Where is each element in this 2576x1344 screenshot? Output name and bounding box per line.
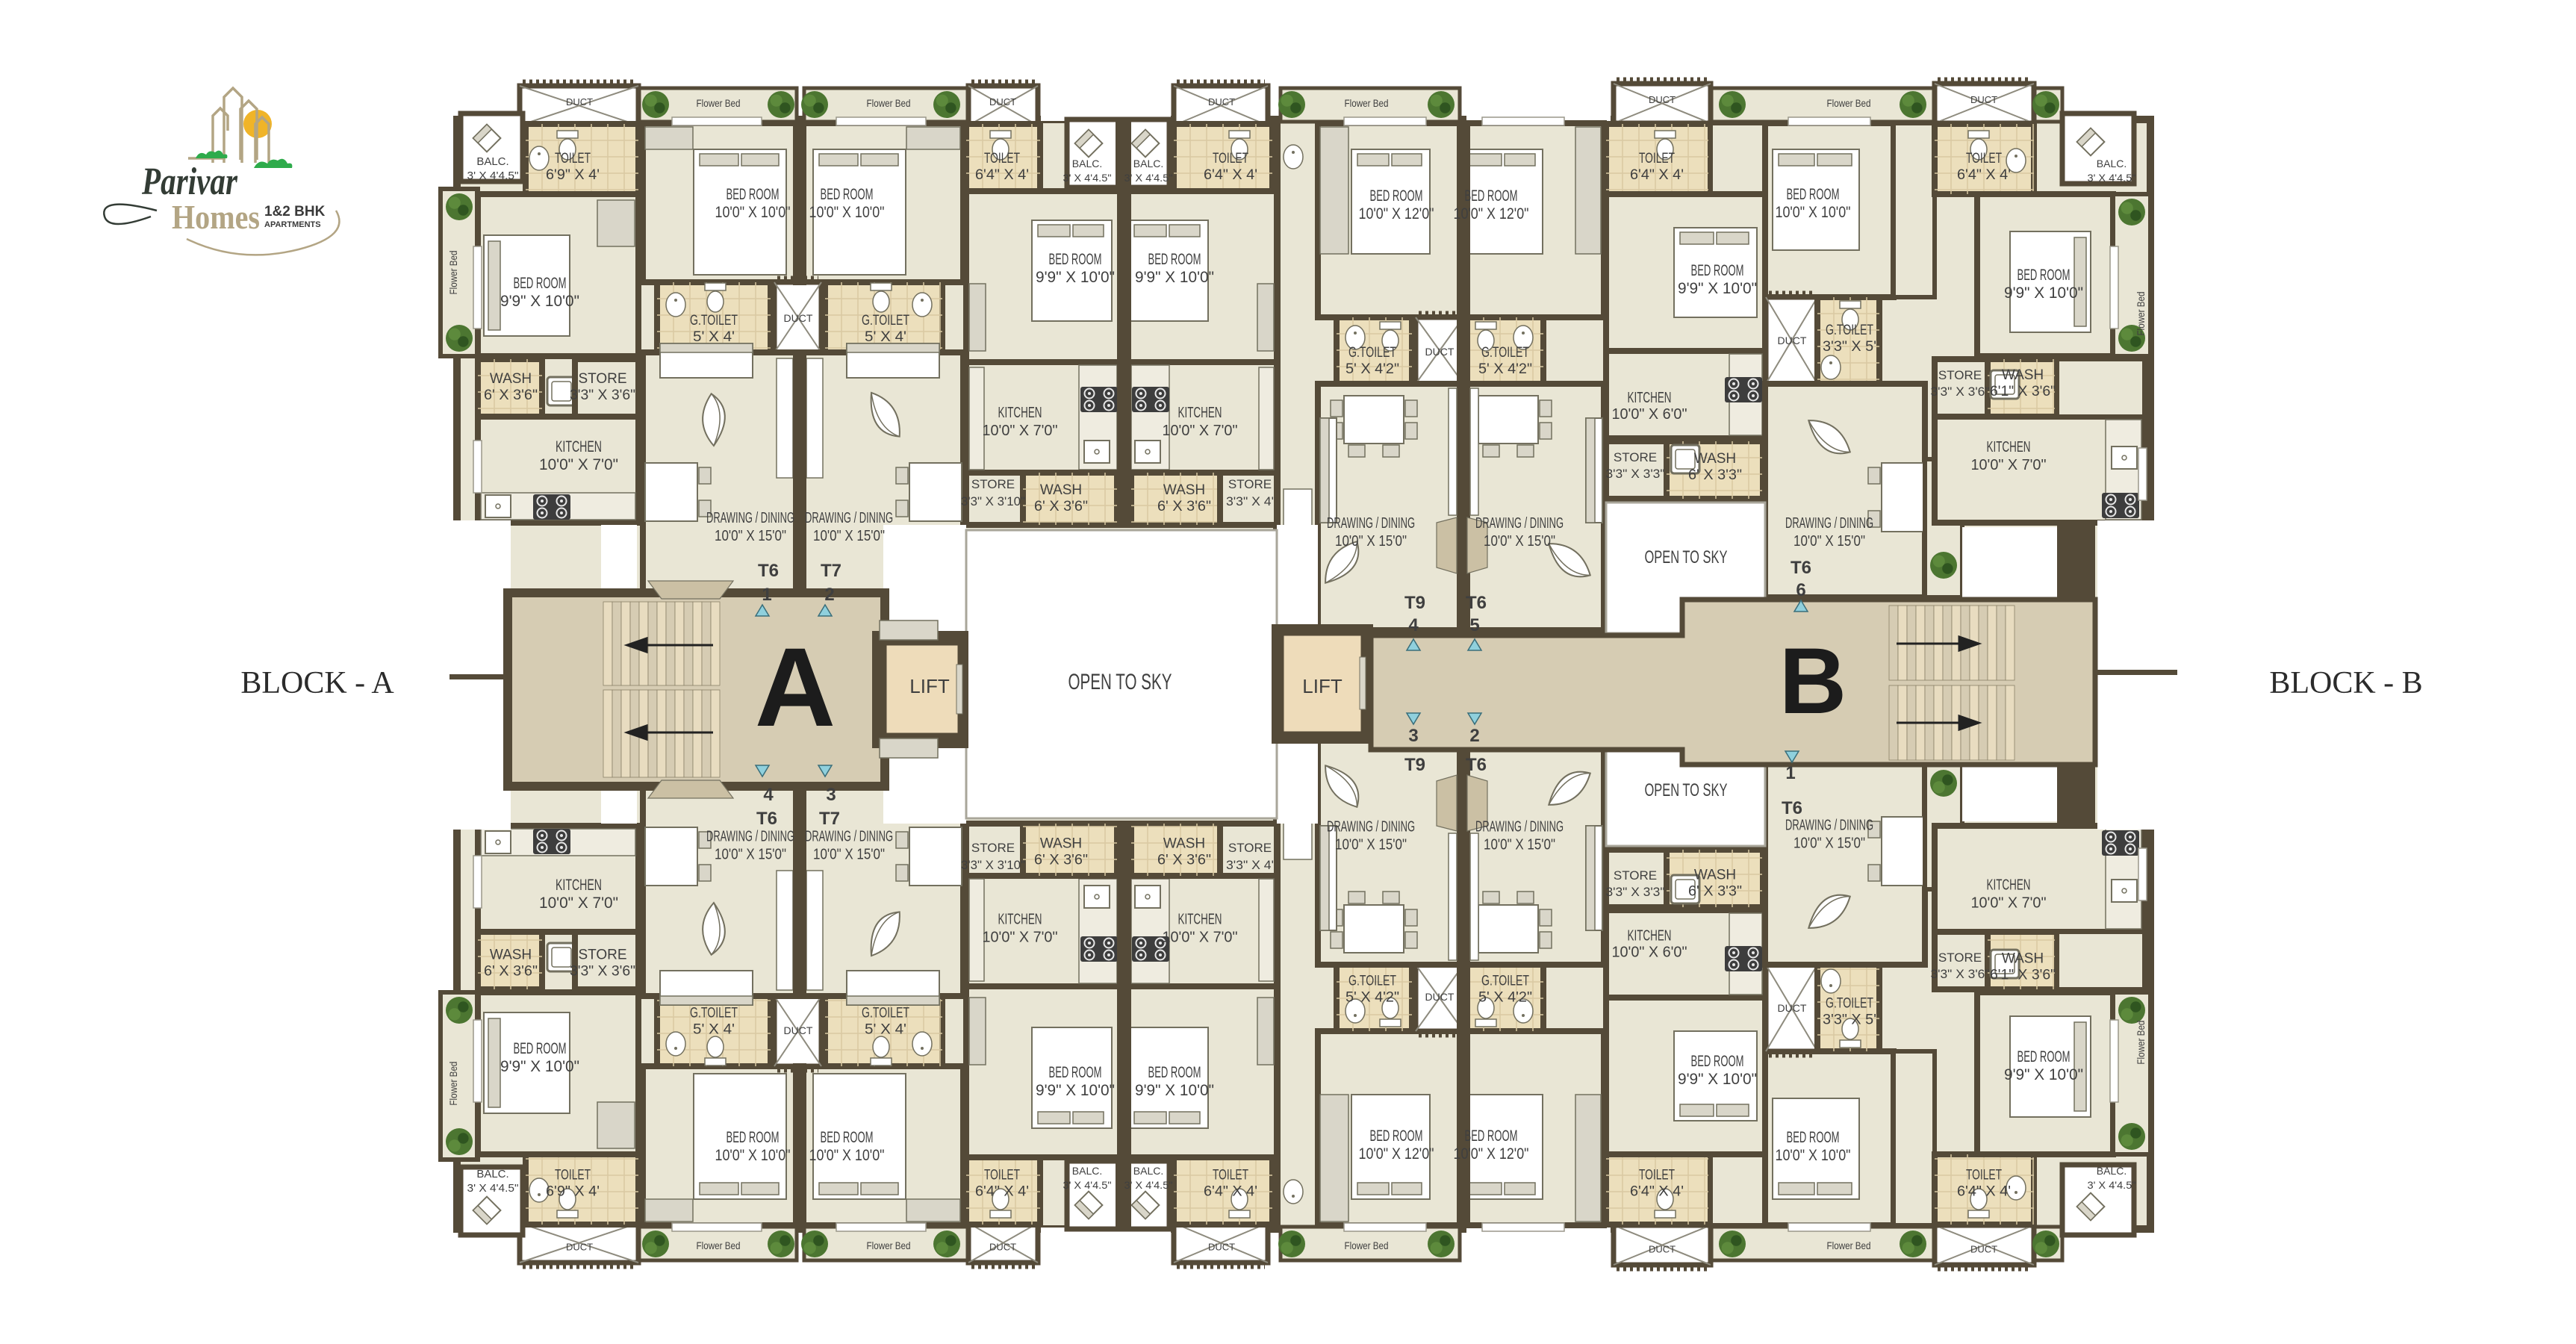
svg-text:3' X 4'4.5": 3' X 4'4.5" <box>2088 1179 2136 1191</box>
svg-text:TOILET: TOILET <box>1639 151 1675 167</box>
svg-text:3'3" X 3'10": 3'3" X 3'10" <box>961 858 1025 872</box>
svg-text:5' X 4': 5' X 4' <box>865 329 906 345</box>
svg-text:OPEN TO SKY: OPEN TO SKY <box>1645 547 1728 567</box>
svg-text:DRAWING / DINING: DRAWING / DINING <box>1785 817 1873 833</box>
svg-text:5: 5 <box>1469 615 1479 635</box>
svg-text:10'0" X 7'0": 10'0" X 7'0" <box>1163 423 1238 439</box>
svg-text:6'4" X 4': 6'4" X 4' <box>975 1184 1029 1200</box>
svg-text:TOILET: TOILET <box>555 1168 591 1183</box>
svg-text:STORE: STORE <box>1614 868 1657 883</box>
svg-text:Flower Bed: Flower Bed <box>1827 1239 1871 1251</box>
svg-text:STORE: STORE <box>578 371 626 387</box>
svg-text:5' X 4'2": 5' X 4'2" <box>1345 361 1399 377</box>
svg-text:WASH: WASH <box>1694 451 1736 467</box>
svg-text:KITCHEN: KITCHEN <box>1628 390 1672 406</box>
svg-text:10'0" X 10'0": 10'0" X 10'0" <box>1776 204 1851 221</box>
svg-text:9'9" X 10'0": 9'9" X 10'0" <box>1036 1082 1115 1099</box>
svg-text:1&2 BHK: 1&2 BHK <box>264 204 326 220</box>
svg-text:DRAWING / DINING: DRAWING / DINING <box>706 828 794 844</box>
svg-text:DUCT: DUCT <box>1970 1243 1997 1254</box>
svg-text:3'3" X 5': 3'3" X 5' <box>1823 1012 1876 1028</box>
svg-text:10'0" X 12'0": 10'0" X 12'0" <box>1359 1145 1434 1163</box>
svg-text:3' X 4'4.5": 3' X 4'4.5" <box>467 1182 519 1195</box>
svg-text:G.TOILET: G.TOILET <box>1826 323 1873 338</box>
svg-text:DUCT: DUCT <box>1649 94 1676 105</box>
svg-text:5' X 4': 5' X 4' <box>693 329 735 345</box>
svg-text:T6: T6 <box>1466 755 1487 775</box>
svg-text:10'0" X 15'0": 10'0" X 15'0" <box>715 528 786 544</box>
svg-text:G.TOILET: G.TOILET <box>1826 996 1873 1012</box>
svg-text:BED ROOM: BED ROOM <box>727 186 780 203</box>
svg-text:6'4" X 4': 6'4" X 4' <box>1630 1184 1684 1200</box>
svg-text:3' X 4'4.5": 3' X 4'4.5" <box>1124 1179 1173 1191</box>
svg-text:KITCHEN: KITCHEN <box>1178 405 1222 421</box>
svg-text:DUCT: DUCT <box>1425 346 1455 358</box>
svg-text:BALC.: BALC. <box>1072 1165 1102 1177</box>
svg-text:TOILET: TOILET <box>1639 1168 1675 1183</box>
svg-text:G.TOILET: G.TOILET <box>862 1006 909 1021</box>
svg-text:10'0" X 7'0": 10'0" X 7'0" <box>983 423 1058 439</box>
svg-text:Parivar: Parivar <box>141 161 237 203</box>
svg-text:10'0" X 15'0": 10'0" X 15'0" <box>1335 533 1407 550</box>
svg-text:STORE: STORE <box>1228 841 1272 855</box>
svg-text:DUCT: DUCT <box>1970 94 1997 105</box>
svg-text:T6: T6 <box>758 561 779 581</box>
svg-text:10'0" X 12'0": 10'0" X 12'0" <box>1454 1145 1529 1163</box>
svg-text:BALC.: BALC. <box>2097 1165 2127 1177</box>
svg-text:TOILET: TOILET <box>984 1168 1020 1183</box>
svg-text:Flower Bed: Flower Bed <box>1345 97 1389 109</box>
svg-text:B: B <box>1779 629 1847 733</box>
svg-text:3'3" X 3'3": 3'3" X 3'3" <box>1606 885 1665 899</box>
svg-text:6'1" X 3'6": 6'1" X 3'6" <box>1990 968 2056 983</box>
svg-text:10'0" X 15'0": 10'0" X 15'0" <box>1484 533 1555 550</box>
svg-text:3'3" X 3'3": 3'3" X 3'3" <box>1606 467 1665 481</box>
svg-text:6' X 3'6": 6' X 3'6" <box>1034 853 1088 868</box>
svg-text:DUCT: DUCT <box>1649 1243 1676 1254</box>
svg-text:6'9" X 4': 6'9" X 4' <box>546 167 600 183</box>
svg-text:9'9" X 10'0": 9'9" X 10'0" <box>500 293 579 310</box>
svg-text:5' X 4'2": 5' X 4'2" <box>1345 990 1399 1006</box>
svg-text:3'3" X 3'6": 3'3" X 3'6" <box>570 964 635 980</box>
svg-text:BED ROOM: BED ROOM <box>514 275 567 292</box>
svg-text:G.TOILET: G.TOILET <box>1481 974 1529 989</box>
svg-text:STORE: STORE <box>971 477 1015 491</box>
svg-text:3: 3 <box>826 785 836 805</box>
svg-text:10'0" X 12'0": 10'0" X 12'0" <box>1359 205 1434 223</box>
svg-text:G.TOILET: G.TOILET <box>690 1006 738 1021</box>
svg-text:DUCT: DUCT <box>989 1241 1016 1252</box>
svg-text:BED ROOM: BED ROOM <box>1465 1127 1518 1145</box>
svg-text:LIFT: LIFT <box>1302 675 1343 697</box>
svg-text:10'0" X 6'0": 10'0" X 6'0" <box>1612 406 1687 423</box>
svg-text:BED ROOM: BED ROOM <box>2017 1048 2071 1065</box>
svg-text:BALC.: BALC. <box>476 155 508 168</box>
svg-text:10'0" X 7'0": 10'0" X 7'0" <box>983 929 1058 945</box>
svg-text:T9: T9 <box>1404 755 1425 775</box>
svg-text:Flower Bed: Flower Bed <box>2135 1021 2147 1065</box>
svg-text:WASH: WASH <box>2002 951 2044 967</box>
svg-text:6'4" X 4': 6'4" X 4' <box>1204 167 1257 183</box>
svg-text:T6: T6 <box>1466 593 1487 613</box>
svg-text:T6: T6 <box>1791 558 1811 578</box>
svg-text:Flower Bed: Flower Bed <box>697 97 741 109</box>
svg-text:9'9" X 10'0": 9'9" X 10'0" <box>1135 269 1214 286</box>
svg-text:10'0" X 10'0": 10'0" X 10'0" <box>715 1147 791 1164</box>
svg-text:3'3" X 3'10": 3'3" X 3'10" <box>961 494 1025 508</box>
svg-text:DUCT: DUCT <box>1425 991 1455 1003</box>
svg-text:3' X 4'4.5": 3' X 4'4.5" <box>1063 1179 1112 1191</box>
svg-text:Flower Bed: Flower Bed <box>1827 97 1871 109</box>
svg-text:BLOCK - B: BLOCK - B <box>2269 666 2422 700</box>
svg-text:3'3" X 4': 3'3" X 4' <box>1226 494 1274 508</box>
svg-text:STORE: STORE <box>1614 450 1657 464</box>
svg-text:DRAWING / DINING: DRAWING / DINING <box>805 828 893 844</box>
svg-text:KITCHEN: KITCHEN <box>998 911 1042 927</box>
svg-text:10'0" X 10'0": 10'0" X 10'0" <box>809 204 885 221</box>
svg-text:DRAWING / DINING: DRAWING / DINING <box>1785 515 1873 532</box>
svg-text:WASH: WASH <box>1040 482 1082 498</box>
svg-text:Homes: Homes <box>172 198 260 236</box>
svg-text:BED ROOM: BED ROOM <box>1370 187 1423 205</box>
svg-text:A: A <box>755 624 836 750</box>
svg-text:10'0" X 15'0": 10'0" X 15'0" <box>813 846 885 862</box>
svg-text:3'3" X 4': 3'3" X 4' <box>1226 858 1274 872</box>
svg-text:BED ROOM: BED ROOM <box>1148 251 1201 268</box>
svg-text:10'0" X 7'0": 10'0" X 7'0" <box>539 456 618 473</box>
svg-text:DUCT: DUCT <box>1778 1002 1807 1014</box>
svg-text:G.TOILET: G.TOILET <box>862 313 909 329</box>
svg-text:G.TOILET: G.TOILET <box>1348 345 1396 361</box>
svg-text:TOILET: TOILET <box>1213 1168 1248 1183</box>
svg-text:BALC.: BALC. <box>1072 158 1102 169</box>
svg-text:Flower Bed: Flower Bed <box>867 97 911 109</box>
svg-text:10'0" X 10'0": 10'0" X 10'0" <box>715 204 791 221</box>
svg-text:10'0" X 7'0": 10'0" X 7'0" <box>1971 895 2047 911</box>
svg-text:STORE: STORE <box>971 841 1015 855</box>
svg-text:BED ROOM: BED ROOM <box>1465 187 1518 205</box>
svg-text:KITCHEN: KITCHEN <box>998 405 1042 421</box>
svg-text:3'3" X 3'6": 3'3" X 3'6" <box>1931 967 1990 981</box>
svg-text:KITCHEN: KITCHEN <box>1987 877 2031 893</box>
svg-text:6'4" X 4': 6'4" X 4' <box>1630 167 1684 183</box>
svg-text:G.TOILET: G.TOILET <box>1348 974 1396 989</box>
svg-text:3'3" X 5': 3'3" X 5' <box>1823 339 1876 355</box>
svg-text:3: 3 <box>1408 726 1418 746</box>
svg-text:Flower Bed: Flower Bed <box>867 1239 911 1251</box>
svg-text:STORE: STORE <box>1938 368 1982 382</box>
svg-text:DUCT: DUCT <box>1778 335 1807 346</box>
svg-text:3' X 4'4.5": 3' X 4'4.5" <box>1124 172 1173 184</box>
svg-text:BED ROOM: BED ROOM <box>1148 1064 1201 1081</box>
svg-text:5' X 4': 5' X 4' <box>865 1022 906 1038</box>
svg-text:2: 2 <box>1469 726 1479 746</box>
svg-text:DUCT: DUCT <box>1208 1241 1235 1252</box>
svg-text:OPEN TO SKY: OPEN TO SKY <box>1068 670 1172 694</box>
svg-text:9'9" X 10'0": 9'9" X 10'0" <box>1678 1071 1757 1088</box>
svg-text:WASH: WASH <box>1040 836 1082 852</box>
svg-text:DRAWING / DINING: DRAWING / DINING <box>1327 818 1415 835</box>
svg-text:DUCT: DUCT <box>784 1024 813 1036</box>
svg-text:STORE: STORE <box>1938 951 1982 965</box>
svg-text:DRAWING / DINING: DRAWING / DINING <box>1475 818 1564 835</box>
svg-text:DRAWING / DINING: DRAWING / DINING <box>805 510 893 526</box>
svg-text:9'9" X 10'0": 9'9" X 10'0" <box>1678 280 1757 297</box>
svg-text:10'0" X 10'0": 10'0" X 10'0" <box>1776 1147 1851 1164</box>
svg-text:WASH: WASH <box>1163 836 1205 852</box>
svg-text:1: 1 <box>762 585 771 605</box>
svg-text:Flower Bed: Flower Bed <box>447 251 459 295</box>
svg-text:6' X 3'3": 6' X 3'3" <box>1688 467 1742 483</box>
svg-text:1: 1 <box>1785 763 1795 783</box>
svg-text:6'1" X 3'6": 6'1" X 3'6" <box>1990 384 2056 399</box>
svg-text:9'9" X 10'0": 9'9" X 10'0" <box>2004 284 2083 302</box>
svg-text:6' X 3'6": 6' X 3'6" <box>484 388 538 403</box>
svg-text:TOILET: TOILET <box>1213 151 1248 167</box>
svg-text:3'3" X 3'6": 3'3" X 3'6" <box>1931 385 1990 399</box>
svg-text:DUCT: DUCT <box>566 96 593 108</box>
svg-text:T6: T6 <box>1782 798 1802 818</box>
svg-text:Flower Bed: Flower Bed <box>447 1062 459 1106</box>
svg-text:BED ROOM: BED ROOM <box>1691 1053 1744 1070</box>
svg-text:6'9" X 4': 6'9" X 4' <box>546 1184 600 1200</box>
svg-text:10'0" X 15'0": 10'0" X 15'0" <box>1793 835 1865 851</box>
svg-text:6: 6 <box>1796 580 1805 600</box>
svg-text:TOILET: TOILET <box>984 151 1020 167</box>
svg-text:2: 2 <box>824 585 834 605</box>
svg-text:BALC.: BALC. <box>2097 158 2127 169</box>
svg-text:TOILET: TOILET <box>1966 151 2002 167</box>
svg-text:9'9" X 10'0": 9'9" X 10'0" <box>1135 1082 1214 1099</box>
svg-text:Flower Bed: Flower Bed <box>1345 1239 1389 1251</box>
svg-text:OPEN TO SKY: OPEN TO SKY <box>1645 780 1728 800</box>
svg-text:10'0" X 7'0": 10'0" X 7'0" <box>1971 457 2047 473</box>
svg-text:6' X 3'6": 6' X 3'6" <box>1034 499 1088 514</box>
svg-text:DRAWING / DINING: DRAWING / DINING <box>1327 515 1415 532</box>
svg-text:Flower Bed: Flower Bed <box>2135 292 2147 336</box>
svg-text:STORE: STORE <box>1228 477 1272 491</box>
svg-text:BED ROOM: BED ROOM <box>1787 186 1840 203</box>
svg-text:T7: T7 <box>819 809 840 829</box>
svg-text:T9: T9 <box>1404 593 1425 613</box>
svg-text:BED ROOM: BED ROOM <box>821 186 874 203</box>
svg-text:6'4" X 4': 6'4" X 4' <box>1957 1184 2011 1200</box>
svg-text:10'0" X 10'0": 10'0" X 10'0" <box>809 1147 885 1164</box>
svg-text:3' X 4'4.5": 3' X 4'4.5" <box>1063 172 1112 184</box>
svg-text:BLOCK - A: BLOCK - A <box>240 666 394 700</box>
svg-text:DRAWING / DINING: DRAWING / DINING <box>1475 515 1564 532</box>
svg-text:6'4" X 4': 6'4" X 4' <box>1204 1184 1257 1200</box>
svg-text:3'3" X 3'6": 3'3" X 3'6" <box>570 388 635 403</box>
svg-text:BED ROOM: BED ROOM <box>2017 267 2071 284</box>
svg-text:WASH: WASH <box>2002 367 2044 383</box>
svg-text:10'0" X 7'0": 10'0" X 7'0" <box>539 895 618 912</box>
svg-text:G.TOILET: G.TOILET <box>690 313 738 329</box>
svg-text:BED ROOM: BED ROOM <box>1787 1129 1840 1146</box>
svg-text:WASH: WASH <box>1163 482 1205 498</box>
svg-text:6'4" X 4': 6'4" X 4' <box>1957 167 2011 183</box>
svg-text:BED ROOM: BED ROOM <box>1049 1064 1102 1081</box>
svg-text:BALC.: BALC. <box>1133 158 1163 169</box>
svg-text:5' X 4'2": 5' X 4'2" <box>1478 361 1532 377</box>
svg-text:6' X 3'6": 6' X 3'6" <box>1157 499 1211 514</box>
svg-text:BED ROOM: BED ROOM <box>1370 1127 1423 1145</box>
svg-text:WASH: WASH <box>490 948 532 963</box>
svg-text:5' X 4': 5' X 4' <box>693 1022 735 1038</box>
svg-text:9'9" X 10'0": 9'9" X 10'0" <box>1036 269 1115 286</box>
svg-text:DUCT: DUCT <box>1208 96 1235 108</box>
svg-text:6' X 3'6": 6' X 3'6" <box>1157 853 1211 868</box>
svg-text:DUCT: DUCT <box>989 96 1016 108</box>
svg-text:WASH: WASH <box>1694 868 1736 883</box>
svg-text:BALC.: BALC. <box>1133 1165 1163 1177</box>
svg-text:DRAWING / DINING: DRAWING / DINING <box>706 510 794 526</box>
svg-text:4: 4 <box>763 785 774 805</box>
svg-text:BED ROOM: BED ROOM <box>514 1040 567 1057</box>
svg-text:9'9" X 10'0": 9'9" X 10'0" <box>500 1058 579 1075</box>
svg-text:4: 4 <box>1408 615 1419 635</box>
svg-text:BED ROOM: BED ROOM <box>1691 262 1744 279</box>
svg-text:10'0" X 7'0": 10'0" X 7'0" <box>1163 929 1238 945</box>
svg-text:9'9" X 10'0": 9'9" X 10'0" <box>2004 1066 2083 1083</box>
svg-text:Flower Bed: Flower Bed <box>697 1239 741 1251</box>
svg-text:G.TOILET: G.TOILET <box>1481 345 1529 361</box>
svg-text:DUCT: DUCT <box>566 1241 593 1252</box>
svg-text:KITCHEN: KITCHEN <box>556 877 602 894</box>
svg-text:KITCHEN: KITCHEN <box>1628 927 1672 944</box>
svg-text:DUCT: DUCT <box>784 312 813 324</box>
svg-text:BED ROOM: BED ROOM <box>727 1129 780 1146</box>
svg-text:10'0" X 15'0": 10'0" X 15'0" <box>1484 836 1555 853</box>
svg-text:TOILET: TOILET <box>1966 1168 2002 1183</box>
svg-text:STORE: STORE <box>578 948 626 963</box>
svg-text:10'0" X 15'0": 10'0" X 15'0" <box>715 846 786 862</box>
svg-text:BED ROOM: BED ROOM <box>1049 251 1102 268</box>
svg-text:BED ROOM: BED ROOM <box>821 1129 874 1146</box>
svg-text:T7: T7 <box>821 561 841 581</box>
svg-text:5' X 4'2": 5' X 4'2" <box>1478 990 1532 1006</box>
svg-text:KITCHEN: KITCHEN <box>1178 911 1222 927</box>
svg-text:10'0" X 15'0": 10'0" X 15'0" <box>1335 836 1407 853</box>
svg-text:10'0" X 15'0": 10'0" X 15'0" <box>1793 533 1865 550</box>
svg-text:WASH: WASH <box>490 371 532 387</box>
svg-text:3' X 4'4.5": 3' X 4'4.5" <box>2088 172 2136 184</box>
svg-text:LIFT: LIFT <box>909 675 950 697</box>
svg-text:10'0" X 12'0": 10'0" X 12'0" <box>1454 205 1529 223</box>
svg-text:KITCHEN: KITCHEN <box>1987 439 2031 455</box>
svg-text:6'4" X 4': 6'4" X 4' <box>975 167 1029 183</box>
svg-text:6' X 3'6": 6' X 3'6" <box>484 964 538 980</box>
svg-text:10'0" X 15'0": 10'0" X 15'0" <box>813 528 885 544</box>
svg-text:BALC.: BALC. <box>476 1168 508 1180</box>
svg-text:T6: T6 <box>756 809 777 829</box>
svg-text:APARTMENTS: APARTMENTS <box>264 220 321 229</box>
svg-text:6' X 3'3": 6' X 3'3" <box>1688 884 1742 900</box>
svg-text:TOILET: TOILET <box>555 151 591 167</box>
svg-text:3' X 4'4.5": 3' X 4'4.5" <box>467 169 519 182</box>
svg-text:KITCHEN: KITCHEN <box>556 438 602 455</box>
svg-text:10'0" X 6'0": 10'0" X 6'0" <box>1612 944 1687 960</box>
